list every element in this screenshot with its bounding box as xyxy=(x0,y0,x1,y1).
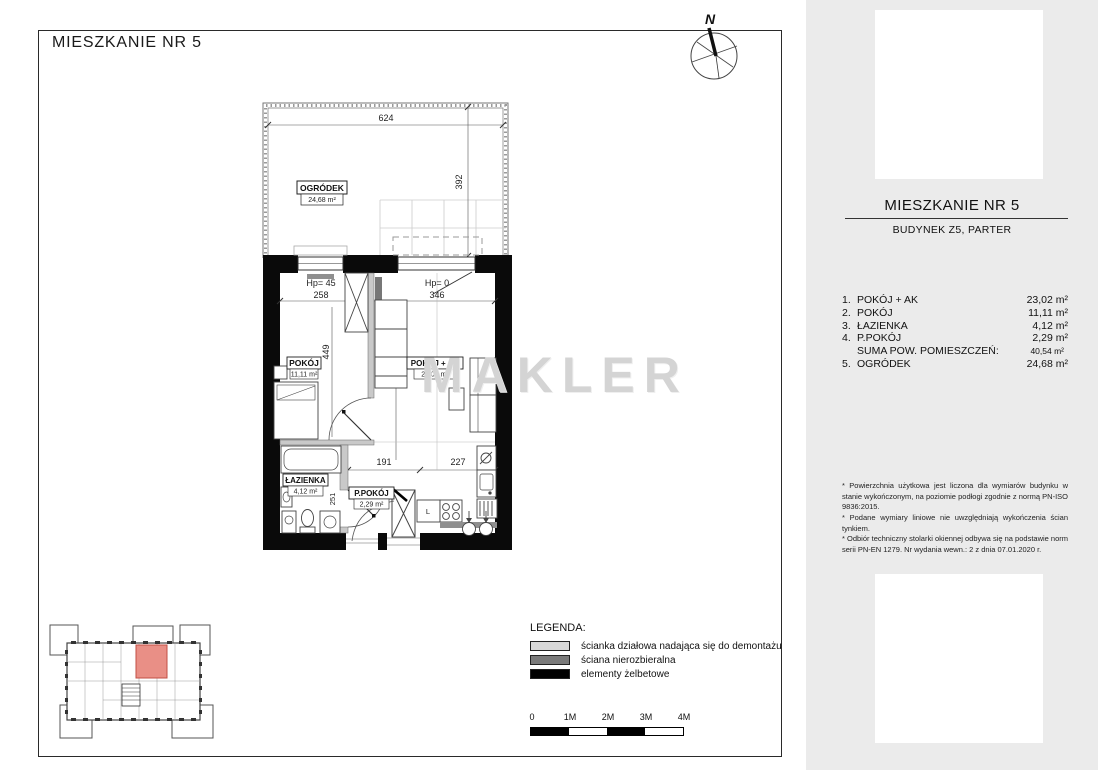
room-name: P.POKÓJ xyxy=(857,332,1032,345)
room-number: 4. xyxy=(842,332,857,345)
room-area: 11,11 m² xyxy=(1028,307,1068,320)
dim-pokoj-depth: 449 xyxy=(321,344,331,359)
compass-icon xyxy=(691,28,737,79)
garden-name: OGRÓDEK xyxy=(300,182,345,193)
floor-plan-sheet: MIESZKANIE NR 5 N xyxy=(0,0,806,770)
dim-garden-width: 624 xyxy=(378,113,393,123)
dim-hp-left: Hp= 45 xyxy=(306,278,335,288)
sum-label: SUMA POW. POMIESZCZEŃ: xyxy=(857,345,1030,358)
title-divider xyxy=(845,218,1068,219)
sum-area: 40,54 m² xyxy=(1030,345,1068,358)
dim-kitchen: 227 xyxy=(450,457,465,467)
footnotes: * Powierzchnia użytkowa jest liczona dla… xyxy=(842,481,1068,555)
svg-text:2,29 m²: 2,29 m² xyxy=(360,502,384,509)
room-label-lazienka: ŁAZIENKA 4,12 m² xyxy=(283,474,328,496)
room-row: 3. ŁAZIENKA 4,12 m² xyxy=(842,320,1068,333)
logo-placeholder-top xyxy=(875,10,1043,179)
room-list: 1. POKÓJ + AK 23,02 m² 2. POKÓJ 11,11 m²… xyxy=(842,294,1068,371)
wardrobe-living xyxy=(375,300,407,388)
fridge-symbol: L xyxy=(426,507,430,516)
room-name: POKÓJ + AK xyxy=(857,294,1027,307)
apartment-title: MIESZKANIE NR 5 xyxy=(806,197,1098,214)
compass-north-label: N xyxy=(705,11,716,27)
room-name: POKÓJ xyxy=(857,307,1028,320)
bed xyxy=(274,382,318,439)
dim-w-left: 258 xyxy=(313,290,328,300)
scale-tick-label: 3M xyxy=(640,712,653,722)
shaft-block xyxy=(375,277,382,300)
dim-hp-right: Hp= 0 xyxy=(425,278,449,288)
svg-text:ŁAZIENKA: ŁAZIENKA xyxy=(285,476,326,485)
room-name: ŁAZIENKA xyxy=(857,320,1032,333)
svg-text:4,12 m²: 4,12 m² xyxy=(294,489,318,496)
room-number: 5. xyxy=(842,358,857,371)
building-overview xyxy=(50,625,213,738)
watermark: MAKLER xyxy=(421,346,689,404)
legend-title: LEGENDA: xyxy=(530,622,782,634)
partition-wall-swatch-icon xyxy=(530,641,570,651)
room-row: 2. POKÓJ 11,11 m² xyxy=(842,307,1068,320)
room-name: OGRÓDEK xyxy=(857,358,1027,371)
room-area: 2,29 m² xyxy=(1032,332,1068,345)
room-row-sum: SUMA POW. POMIESZCZEŃ: 40,54 m² xyxy=(842,345,1068,358)
dim-hall: 191 xyxy=(376,457,391,467)
garden-label: OGRÓDEK 24,68 m² xyxy=(297,181,347,205)
highlighted-unit xyxy=(136,645,167,678)
dim-bath-depth: 251 xyxy=(328,493,337,506)
footnote: * Powierzchnia użytkowa jest liczona dla… xyxy=(842,481,1068,513)
svg-text:11,11 m²: 11,11 m² xyxy=(291,372,318,379)
concrete-swatch-icon xyxy=(530,669,570,679)
scale-bar: 0 1M 2M 3M 4M xyxy=(528,712,693,742)
nightstand xyxy=(274,366,287,379)
svg-text:POKÓJ: POKÓJ xyxy=(289,357,319,368)
scale-bar-segments xyxy=(530,727,684,736)
room-row: 5. OGRÓDEK 24,68 m² xyxy=(842,358,1068,371)
legend-item: elementy żelbetowe xyxy=(530,667,782,681)
screen: MIESZKANIE NR 5 N xyxy=(0,0,1098,770)
scale-tick-label: 0 xyxy=(529,712,534,722)
room-number xyxy=(842,345,857,358)
room-label-ppokoj: P.POKÓJ 2,29 m² xyxy=(349,487,394,509)
room-number: 2. xyxy=(842,307,857,320)
legend-label: elementy żelbetowe xyxy=(581,669,669,680)
room-area: 23,02 m² xyxy=(1027,294,1068,307)
footnote: * Odbiór techniczny stolarki okiennej od… xyxy=(842,534,1068,555)
staircase xyxy=(122,684,140,706)
footnote: * Podane wymiary liniowe nie uwzględniaj… xyxy=(842,513,1068,534)
building-subtitle: BUDYNEK Z5, PARTER xyxy=(806,224,1098,236)
svg-text:P.POKÓJ: P.POKÓJ xyxy=(354,489,389,498)
legend-item: ścianka działowa nadająca się do demonta… xyxy=(530,639,782,653)
scale-tick-label: 1M xyxy=(564,712,577,722)
room-label-pokoj: POKÓJ 11,11 m² xyxy=(287,357,321,379)
room-row: 4. P.POKÓJ 2,29 m² xyxy=(842,332,1068,345)
scale-tick-label: 2M xyxy=(602,712,615,722)
legend: LEGENDA: ścianka działowa nadająca się d… xyxy=(530,622,782,681)
dim-garden-depth: 392 xyxy=(454,174,464,189)
legend-item: ściana nierozbieralna xyxy=(530,653,782,667)
room-number: 3. xyxy=(842,320,857,333)
room-area: 4,12 m² xyxy=(1032,320,1068,333)
legend-label: ściana nierozbieralna xyxy=(581,655,676,666)
logo-placeholder-bottom xyxy=(875,574,1043,743)
wardrobe-top xyxy=(345,273,368,332)
solid-wall-swatch-icon xyxy=(530,655,570,665)
garden-area: 24,68 m² xyxy=(308,197,336,204)
legend-label: ścianka działowa nadająca się do demonta… xyxy=(581,641,782,652)
room-row: 1. POKÓJ + AK 23,02 m² xyxy=(842,294,1068,307)
room-number: 1. xyxy=(842,294,857,307)
terrace-grid xyxy=(380,200,506,255)
info-sidebar: MIESZKANIE NR 5 BUDYNEK Z5, PARTER 1. PO… xyxy=(806,0,1098,770)
window-left xyxy=(294,246,347,279)
room-area: 24,68 m² xyxy=(1027,358,1068,371)
dim-w-right: 346 xyxy=(429,290,444,300)
scale-tick-label: 4M xyxy=(678,712,691,722)
